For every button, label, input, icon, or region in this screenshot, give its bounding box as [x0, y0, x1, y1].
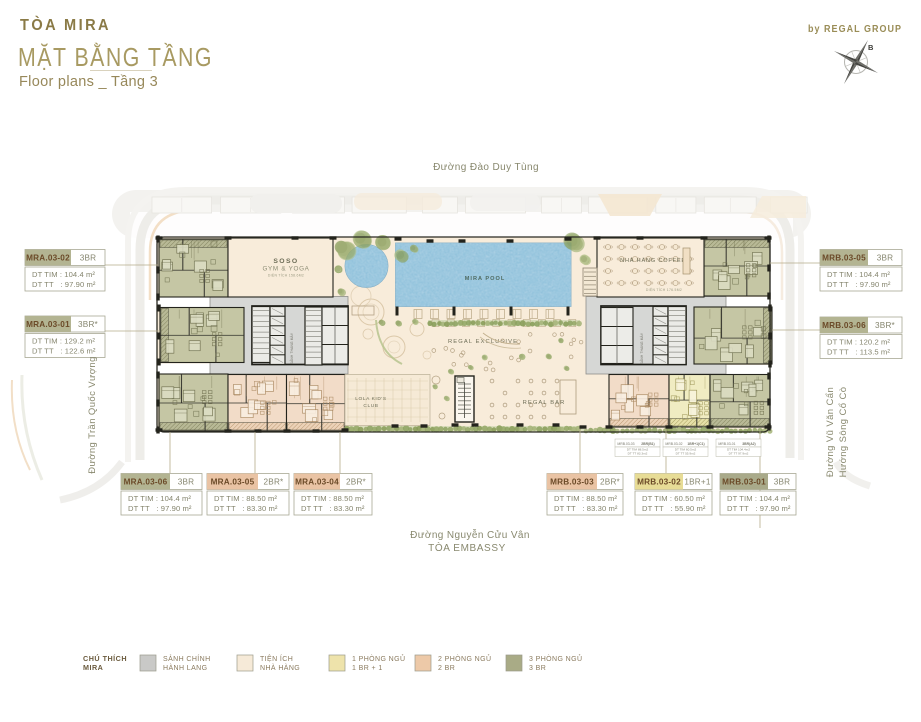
svg-text:Đường Trần Quốc Vượng: Đường Trần Quốc Vượng [87, 356, 98, 474]
svg-text:DT TT : 83.30 m²: DT TT : 83.30 m² [301, 504, 365, 513]
svg-text:DT TIM : 88.50 m²: DT TIM : 88.50 m² [214, 494, 277, 503]
svg-text:MRB.03-03: MRB.03-03 [617, 442, 634, 446]
svg-text:3BR*: 3BR* [875, 321, 896, 330]
svg-text:MRA.03-06: MRA.03-06 [124, 478, 168, 487]
svg-text:DT TT : 113.5 m²: DT TT : 113.5 m² [827, 348, 890, 357]
svg-text:REGAL EXCLUSIVE: REGAL EXCLUSIVE [448, 339, 518, 345]
svg-text:3BR: 3BR [80, 254, 97, 263]
svg-text:TÒA MIRA: TÒA MIRA [20, 16, 111, 34]
svg-text:TIỆN ÍCH: TIỆN ÍCH [260, 654, 293, 663]
svg-text:B: B [868, 43, 874, 52]
svg-text:2 BR: 2 BR [438, 665, 455, 672]
svg-text:DT TIM : 104.4 m²: DT TIM : 104.4 m² [128, 494, 191, 503]
svg-text:MIRA: MIRA [83, 663, 103, 672]
svg-text:SẢNH THANG MÁY: SẢNH THANG MÁY [639, 332, 644, 364]
svg-text:SẢNH THANG MÁY: SẢNH THANG MÁY [289, 332, 294, 364]
svg-text:3 BR: 3 BR [529, 665, 546, 672]
svg-text:DT TT : 55.90 m²: DT TT : 55.90 m² [642, 504, 706, 513]
svg-text:MẶT BẰNG TẦNG: MẶT BẰNG TẦNG [18, 42, 213, 72]
svg-text:1BR+1(C1): 1BR+1(C1) [687, 442, 704, 446]
svg-text:DT TIM : 104.4 m²: DT TIM : 104.4 m² [727, 494, 790, 503]
svg-text:2BR*: 2BR* [264, 478, 285, 487]
svg-text:NHÀ HÀNG COFFEE: NHÀ HÀNG COFFEE [620, 257, 686, 264]
svg-text:MRB.03-02: MRB.03-02 [637, 478, 681, 487]
svg-text:DIỆN TÍCH 176.5M2: DIỆN TÍCH 176.5M2 [646, 287, 682, 292]
svg-text:3BR: 3BR [178, 478, 195, 487]
svg-text:DT TT : 83.30 m²: DT TT : 83.30 m² [214, 504, 278, 513]
svg-text:Floor plans _ Tầng 3: Floor plans _ Tầng 3 [19, 73, 158, 90]
svg-text:1 PHÒNG NGỦ: 1 PHÒNG NGỦ [352, 654, 405, 663]
svg-text:REGAL BAR: REGAL BAR [523, 400, 566, 406]
svg-text:DT TIM : 104.4 m²: DT TIM : 104.4 m² [32, 270, 95, 279]
svg-text:1BR+1: 1BR+1 [684, 478, 711, 487]
svg-text:DT TIM : 120.2 m²: DT TIM : 120.2 m² [827, 338, 890, 347]
svg-text:DT TT 97.9m2: DT TT 97.9m2 [729, 452, 749, 456]
svg-text:CHÚ THÍCH: CHÚ THÍCH [83, 654, 127, 663]
svg-text:DT TIM : 88.50 m²: DT TIM : 88.50 m² [554, 494, 617, 503]
svg-text:3BR(A2): 3BR(A2) [742, 442, 755, 446]
svg-text:DT TIM : 129.2 m²: DT TIM : 129.2 m² [32, 337, 95, 346]
svg-text:DT TT 55.9m2: DT TT 55.9m2 [676, 452, 696, 456]
svg-text:SẢNH CHÍNH: SẢNH CHÍNH [163, 654, 211, 663]
svg-text:Hướng Sông Cổ Cò: Hướng Sông Cổ Cò [838, 387, 849, 478]
svg-text:2BR(B1): 2BR(B1) [641, 442, 654, 446]
svg-text:MRA.03-04: MRA.03-04 [295, 478, 339, 487]
svg-text:3BR: 3BR [774, 478, 791, 487]
svg-text:LOLA KID'S: LOLA KID'S [355, 396, 386, 402]
svg-text:DT TT : 122.6 m²: DT TT : 122.6 m² [32, 347, 96, 356]
svg-text:DT TT : 97.90 m²: DT TT : 97.90 m² [128, 504, 192, 513]
svg-text:MRA.03-01: MRA.03-01 [26, 320, 70, 329]
svg-text:Đường Nguyễn Cửu Vân: Đường Nguyễn Cửu Vân [410, 528, 530, 541]
svg-text:NHÀ HÀNG: NHÀ HÀNG [260, 663, 300, 672]
svg-text:3BR*: 3BR* [78, 320, 99, 329]
svg-text:DT TIM : 88.50 m²: DT TIM : 88.50 m² [301, 494, 364, 503]
svg-text:1 BR + 1: 1 BR + 1 [352, 665, 383, 672]
svg-text:TÒA EMBASSY: TÒA EMBASSY [428, 541, 506, 554]
svg-text:MRB.03-06: MRB.03-06 [822, 321, 866, 330]
svg-text:DT TIM : 60.50 m²: DT TIM : 60.50 m² [642, 494, 705, 503]
svg-text:GYM & YOGA: GYM & YOGA [262, 266, 309, 273]
svg-text:Đường Đào Duy Tùng: Đường Đào Duy Tùng [433, 162, 539, 173]
svg-text:MRB.03-02: MRB.03-02 [665, 442, 682, 446]
svg-text:MIRA POOL: MIRA POOL [465, 276, 506, 282]
svg-text:DT TIM : 104.4 m²: DT TIM : 104.4 m² [827, 270, 890, 279]
svg-text:MRB.03-03: MRB.03-03 [550, 478, 594, 487]
svg-text:by REGAL GROUP: by REGAL GROUP [808, 23, 902, 35]
svg-text:DT TT : 83.30 m²: DT TT : 83.30 m² [554, 504, 618, 513]
svg-text:MRB.03-01: MRB.03-01 [722, 478, 766, 487]
svg-text:DT TT : 97.90 m²: DT TT : 97.90 m² [32, 280, 96, 289]
svg-text:2BR*: 2BR* [346, 478, 367, 487]
svg-text:DT TT : 97.90 m²: DT TT : 97.90 m² [827, 280, 891, 289]
svg-text:Đường Vũ Văn Cẩn: Đường Vũ Văn Cẩn [825, 387, 836, 477]
svg-text:MRA.03-05: MRA.03-05 [211, 478, 255, 487]
svg-text:DT TT : 97.90 m²: DT TT : 97.90 m² [727, 504, 791, 513]
svg-text:DIỆN TÍCH 158.6M2: DIỆN TÍCH 158.6M2 [268, 273, 304, 278]
svg-text:MRA.03-02: MRA.03-02 [26, 254, 70, 263]
svg-text:MRB.03-01: MRB.03-01 [718, 442, 735, 446]
svg-text:CLUB: CLUB [363, 403, 378, 409]
svg-text:2 PHÒNG NGỦ: 2 PHÒNG NGỦ [438, 654, 491, 663]
svg-text:MRB.03-05: MRB.03-05 [822, 254, 866, 263]
svg-text:HÀNH LANG: HÀNH LANG [163, 663, 207, 672]
svg-text:SOSO: SOSO [273, 258, 298, 265]
svg-text:DT TT 83.3m2: DT TT 83.3m2 [628, 452, 648, 456]
svg-text:2BR*: 2BR* [600, 478, 621, 487]
svg-text:3BR: 3BR [877, 254, 894, 263]
svg-text:3 PHÒNG NGỦ: 3 PHÒNG NGỦ [529, 654, 582, 663]
